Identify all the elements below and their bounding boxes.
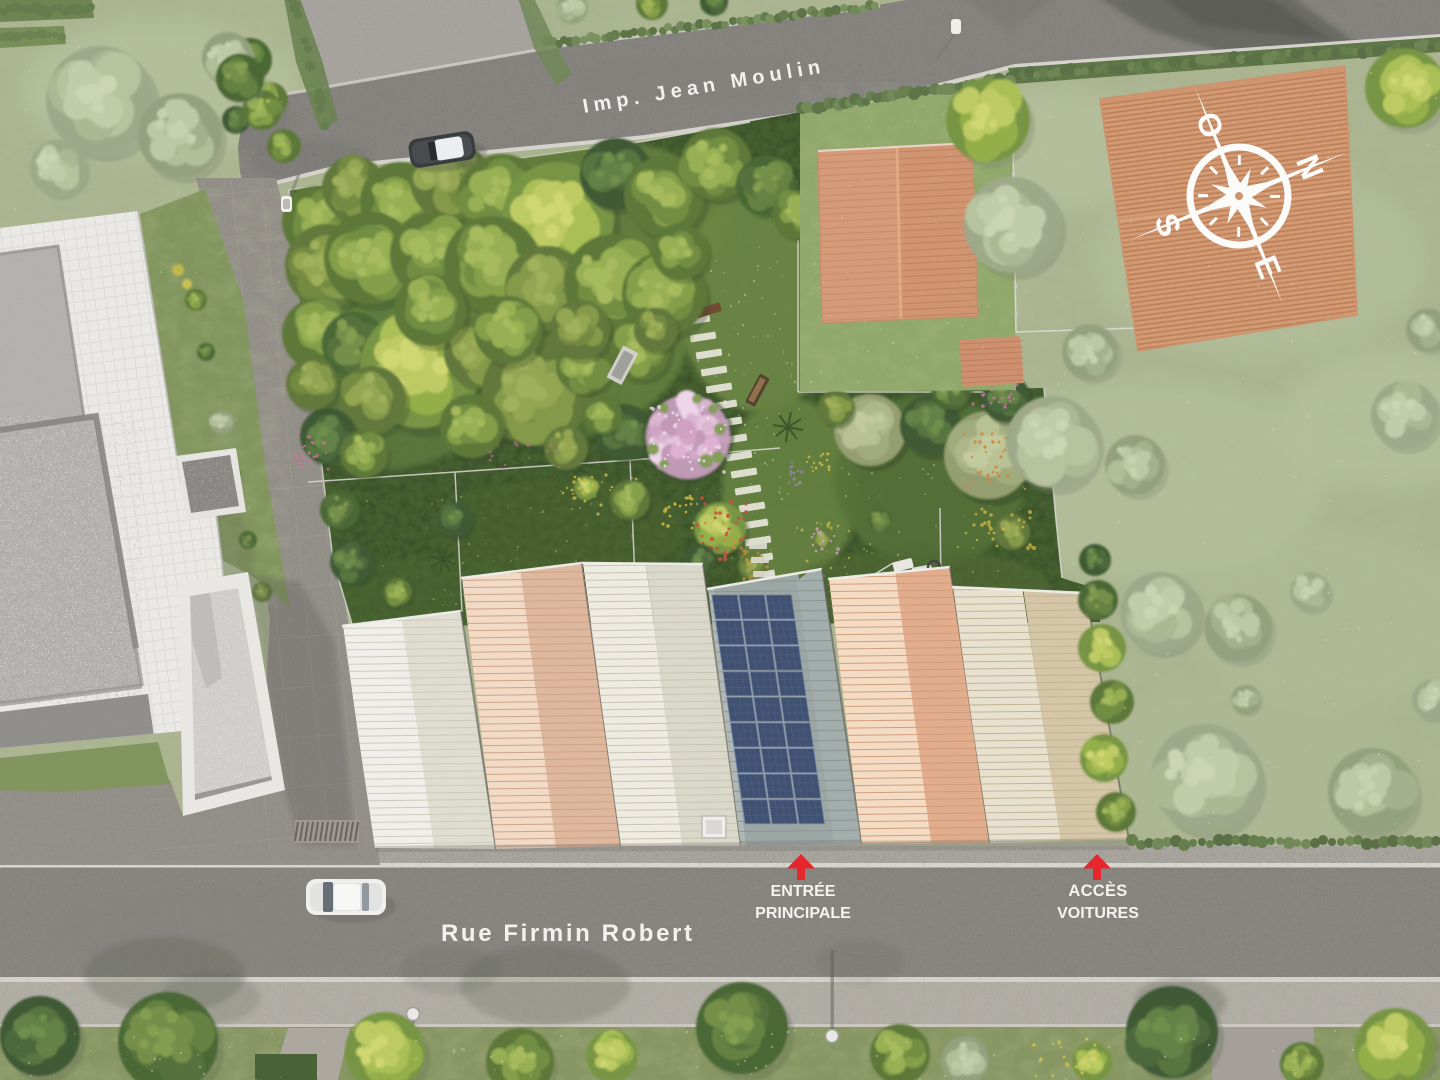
svg-text:ACCÈS: ACCÈS xyxy=(1068,881,1127,900)
svg-text:ENTRÉE: ENTRÉE xyxy=(771,881,836,900)
svg-text:VOITURES: VOITURES xyxy=(1057,905,1139,922)
svg-text:PRINCIPALE: PRINCIPALE xyxy=(755,905,851,922)
svg-text:Rue Firmin Robert: Rue Firmin Robert xyxy=(441,920,695,947)
